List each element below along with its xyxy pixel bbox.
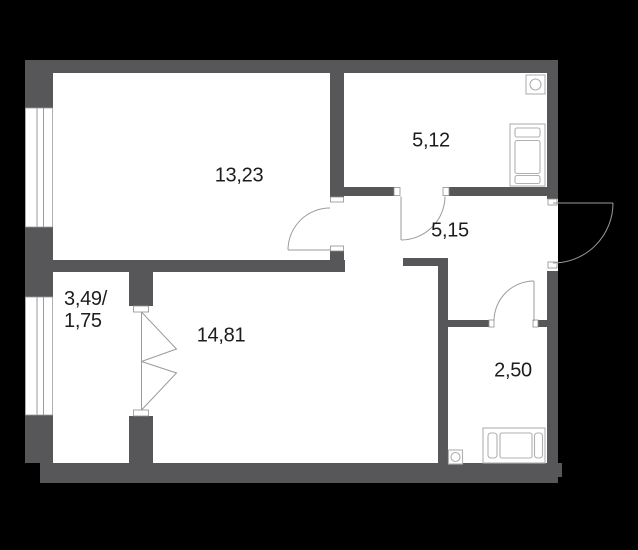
floor-plan: 13,23 5,12 5,15 14,81 2,50 3,49/ 1,75 bbox=[0, 0, 638, 550]
room-label-5-12: 5,12 bbox=[412, 130, 450, 153]
balcony-window-icon bbox=[26, 297, 53, 415]
room-label-2-50: 2,50 bbox=[494, 360, 532, 383]
bathtub-icon bbox=[483, 428, 545, 463]
floor-plan-svg bbox=[0, 0, 638, 550]
room-label-14-81: 14,81 bbox=[197, 325, 246, 348]
balcony-label-line2: 1,75 bbox=[64, 310, 107, 332]
stove-icon bbox=[510, 124, 545, 186]
room-label-balcony: 3,49/ 1,75 bbox=[64, 288, 107, 332]
sink-icon bbox=[526, 75, 545, 94]
window-icon bbox=[26, 108, 53, 227]
balcony-label-line1: 3,49/ bbox=[64, 288, 107, 310]
room-label-13-23: 13,23 bbox=[215, 165, 264, 188]
room-label-5-15: 5,15 bbox=[431, 220, 469, 243]
entrance-door-arc-icon bbox=[553, 203, 613, 263]
washbasin-icon bbox=[449, 450, 463, 464]
